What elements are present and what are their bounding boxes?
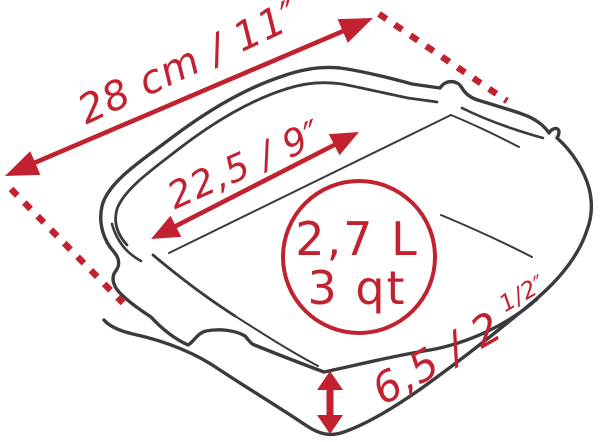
dish-handle-right-inner: [462, 108, 543, 138]
outer-width-arrowhead-right: [338, 18, 373, 43]
dish-rim-inner-frontleft: [153, 255, 235, 316]
height-arrow: [317, 371, 343, 434]
extension-line-left: [11, 189, 123, 303]
dimension-diagram: 28 cm / 11″ 22,5 / 9″ 2,7 L 3 qt 6,5 / 2…: [0, 0, 600, 442]
dimension-annotations: 28 cm / 11″ 22,5 / 9″ 2,7 L 3 qt 6,5 / 2…: [5, 0, 563, 434]
outer-width-arrowhead-left: [5, 151, 40, 176]
extension-line-right: [379, 14, 507, 101]
capacity-liters-label: 2,7 L: [295, 212, 418, 266]
dish-floor-edge-southeast: [441, 215, 532, 257]
outer-width-label: 28 cm / 11″: [71, 0, 308, 134]
diagram-canvas: 28 cm / 11″ 22,5 / 9″ 2,7 L 3 qt 6,5 / 2…: [0, 0, 600, 442]
height-arrowhead-top: [317, 371, 343, 390]
capacity-quarts-label: 3 qt: [307, 261, 406, 315]
